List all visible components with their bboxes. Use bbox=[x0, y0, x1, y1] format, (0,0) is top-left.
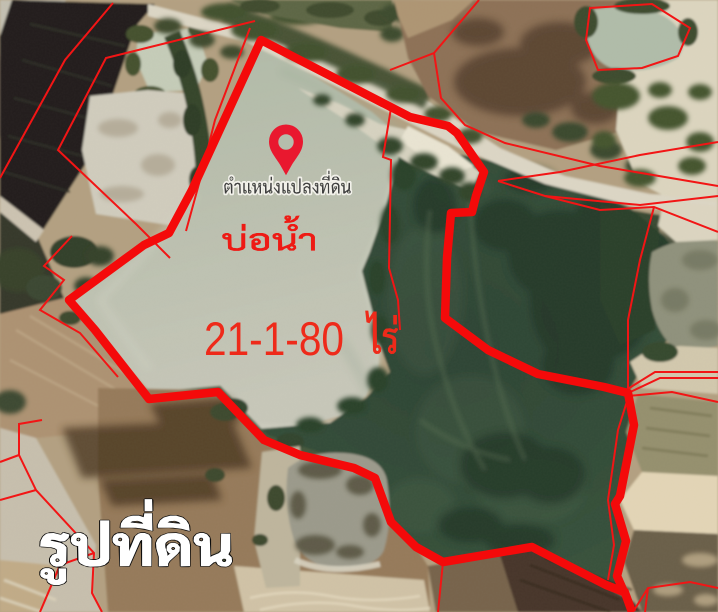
svg-text:21-1-80: 21-1-80 bbox=[204, 312, 344, 365]
